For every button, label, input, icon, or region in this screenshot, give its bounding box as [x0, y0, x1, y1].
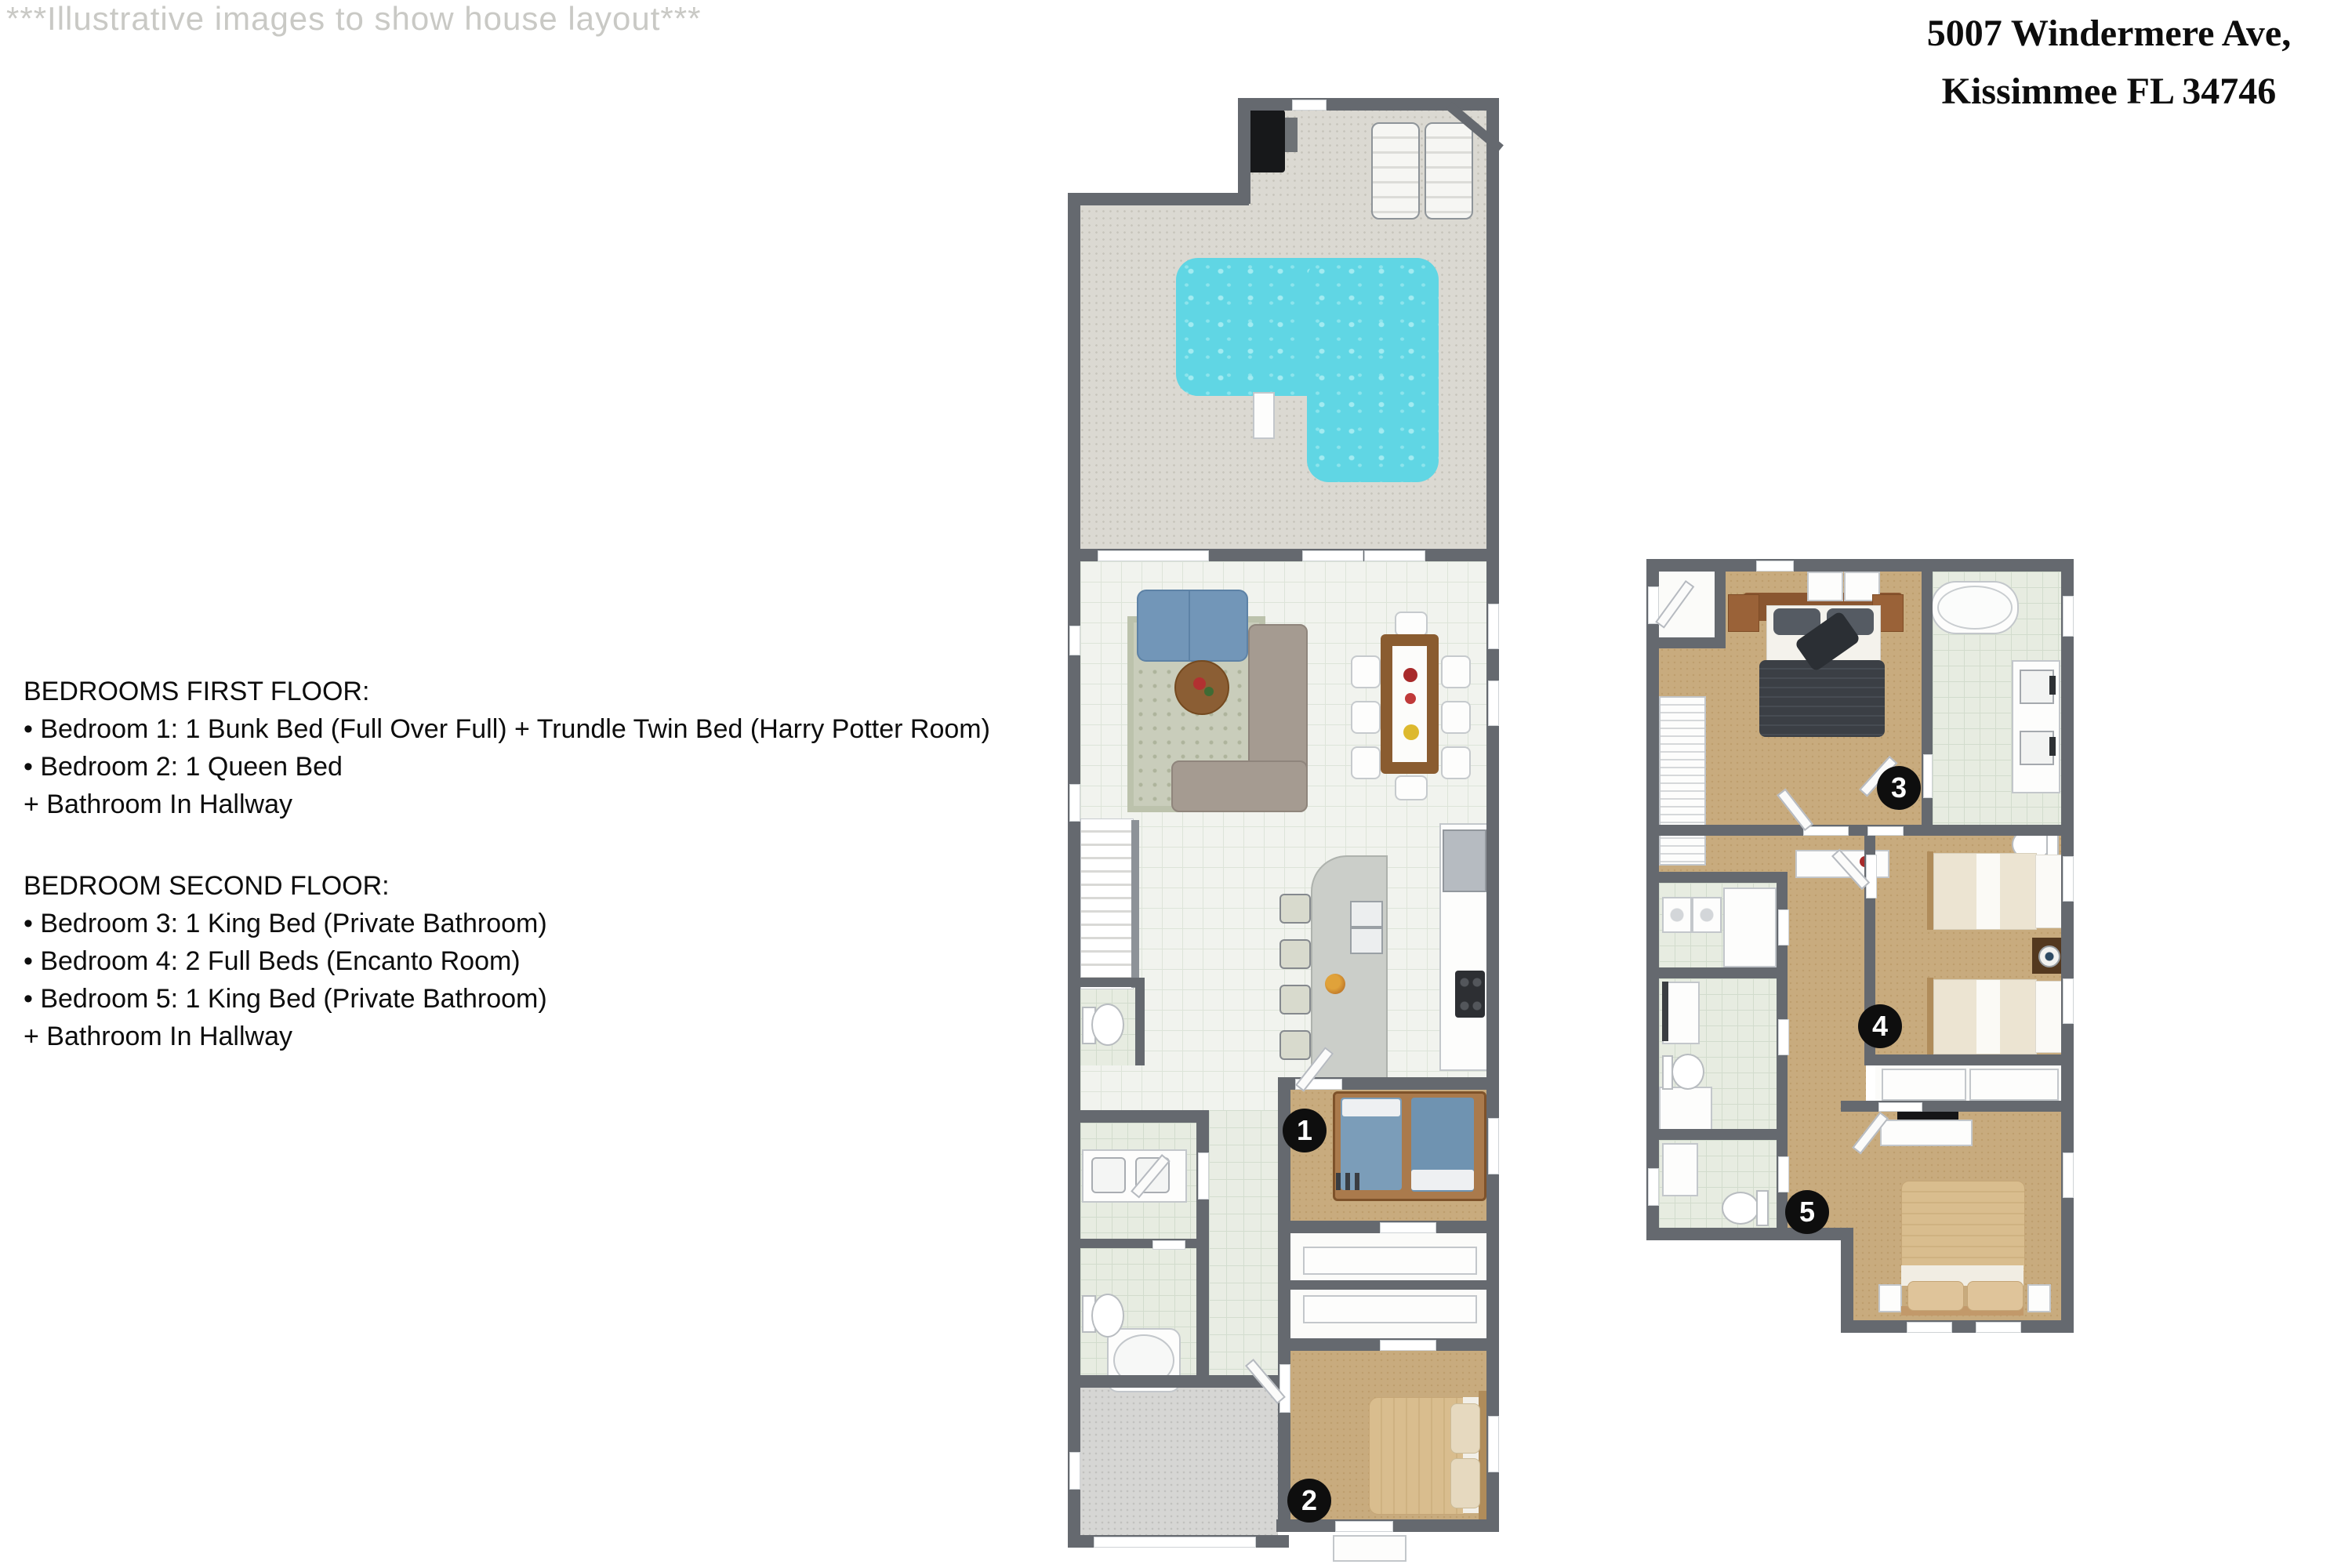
laundry-wall-bottom [1659, 967, 1777, 978]
plan2-window-bed4-1 [2063, 856, 2074, 902]
first-floor-info: BEDROOMS FIRST FLOOR: • Bedroom 1: 1 Bun… [24, 673, 990, 823]
bathroom3-tub-basin [1937, 586, 2013, 630]
grill-side-shelf [1285, 118, 1298, 152]
hallway-floor [1209, 1110, 1278, 1378]
kitchen-island [1311, 855, 1388, 1080]
window-left-2 [1069, 784, 1080, 822]
plan2-window-bottom-1 [1907, 1322, 1952, 1333]
hall-bath-toilet-bowl [1671, 1054, 1704, 1090]
staircase [1080, 818, 1134, 989]
powder-toilet-bowl [1091, 1004, 1124, 1046]
floorplan-page: { "watermark": "***Illustrative images t… [0, 0, 2352, 1568]
bathroom1-sink-1 [1091, 1157, 1126, 1193]
plan2-window-bed4-2 [2063, 978, 2074, 1024]
window-left-1 [1069, 626, 1080, 655]
garage-door-opening [1094, 1537, 1256, 1548]
window-bedroom1 [1488, 1118, 1499, 1174]
hall-bath-door-opening [1778, 1019, 1789, 1055]
patio-window-west [1098, 550, 1209, 561]
full-bed-b-footboard [1927, 978, 1933, 1054]
window-right-2 [1488, 681, 1499, 726]
dining-decor-red [1405, 693, 1416, 704]
window-bedroom2 [1488, 1416, 1499, 1472]
dining-chair-right-3 [1441, 746, 1471, 779]
first-floor-bath-item: + Bathroom In Hallway [24, 786, 990, 823]
dining-chair-right-1 [1441, 655, 1471, 688]
trundle-bed-sheet [1411, 1170, 1474, 1190]
bar-stool-1 [1279, 894, 1311, 924]
island-sink-2 [1350, 927, 1383, 954]
plan2-window-left-2 [1648, 1168, 1659, 1206]
bathroom1-wall-right [1196, 1110, 1209, 1375]
closet2-opening [1380, 1340, 1436, 1351]
bar-stool-2 [1279, 939, 1311, 969]
bathroom5-toilet-tank [1756, 1190, 1769, 1226]
sectional-sofa-horizontal [1171, 760, 1308, 812]
bathroom5-door-opening [1778, 1156, 1789, 1192]
bedroom-2-badge: 2 [1287, 1479, 1331, 1523]
closet1-opening [1380, 1222, 1436, 1233]
bedroom5-wall-top [1841, 1101, 2061, 1112]
front-porch-step [1333, 1535, 1406, 1562]
first-floor-heading: BEDROOMS FIRST FLOOR: [24, 673, 990, 710]
bathroom1-toilet-bowl [1091, 1294, 1124, 1338]
bedroom-3-badge: 3 [1877, 766, 1921, 810]
lounge-chair-2 [1425, 122, 1473, 220]
front-door-opening [1335, 1521, 1393, 1532]
bed5-nightstand-left [1878, 1284, 1902, 1312]
second-floor-heading: BEDROOM SECOND FLOOR: [24, 867, 547, 905]
plan2-window-bed5 [2063, 1152, 2074, 1198]
fruit-bowl [1325, 974, 1345, 994]
full-bed-a-footboard [1927, 851, 1933, 930]
closet2-shelf [1303, 1295, 1477, 1323]
bedroom-5-item: • Bedroom 5: 1 King Bed (Private Bathroo… [24, 980, 547, 1018]
hall2-opening [1867, 826, 1904, 836]
bathrooms-divider-wall [1659, 1129, 1777, 1140]
king-bed5-duvet [1901, 1181, 2025, 1272]
watermark-text: ***Illustrative images to show house lay… [6, 0, 701, 38]
bed3-closet-wall-h [1659, 637, 1726, 648]
bed5-pillow-1 [1907, 1281, 1964, 1311]
bed3-louver-closet-door [1659, 696, 1706, 866]
bedroom-4-item: • Bedroom 4: 2 Full Beds (Encanto Room) [24, 942, 547, 980]
loveseat-blue [1137, 590, 1248, 662]
full-bed-a [1933, 853, 2037, 930]
coffee-table-decor-red [1193, 677, 1206, 690]
closet45-shelf-1 [1882, 1069, 1966, 1101]
dining-decor-bowl [1403, 724, 1419, 740]
garage-floor [1080, 1388, 1278, 1537]
bar-stool-3 [1279, 985, 1311, 1014]
laundry-door-opening [1778, 909, 1789, 946]
plan2-bed5-wall-left [1841, 1228, 1853, 1333]
bedroom-2-item: • Bedroom 2: 1 Queen Bed [24, 748, 990, 786]
second-floor-info: BEDROOM SECOND FLOOR: • Bedroom 3: 1 Kin… [24, 867, 547, 1055]
cooktop [1455, 971, 1485, 1018]
bed3-duvet [1759, 660, 1885, 737]
queen-bed-pillow-2 [1450, 1458, 1480, 1508]
patio-slider-1 [1302, 550, 1363, 561]
bedroom-1-badge: 1 [1283, 1109, 1327, 1152]
plan2-window-bottom-2 [1976, 1322, 2021, 1333]
hall-bath-shower [1659, 1087, 1712, 1131]
plan2-wall-bottom [1841, 1320, 2074, 1333]
bedroom5-door-opening [1878, 1102, 1922, 1112]
dining-chair-left-1 [1351, 655, 1381, 688]
deck-wall-left [1068, 193, 1080, 561]
bathroom3-door-opening [1923, 754, 1933, 798]
dining-chair-right-2 [1441, 701, 1471, 734]
bathroom1-door-opening [1198, 1152, 1209, 1200]
queen-bed-pillow-1 [1450, 1403, 1480, 1454]
bar-stool-4 [1279, 1030, 1311, 1060]
bathroom3-faucet-1 [2049, 676, 2056, 695]
address-line-1: 5007 Windermere Ave, [1874, 5, 2344, 63]
bathroom1-inner-opening [1152, 1240, 1185, 1250]
dining-chair-bottom [1395, 775, 1428, 800]
patio-slider-2 [1364, 550, 1425, 561]
laundry-cabinet [1723, 887, 1777, 967]
dryer [1692, 897, 1722, 933]
washer [1662, 897, 1692, 933]
bathroom5-shower [1662, 1143, 1698, 1196]
stair-railing [1131, 820, 1139, 988]
closet-divider-wall [1290, 1280, 1486, 1290]
lounge-chair-1 [1371, 122, 1420, 220]
bedroom2-door-opening [1279, 1364, 1290, 1413]
dining-decor-flowers [1403, 668, 1417, 682]
full-bed-b-pillow [2035, 981, 2062, 1053]
second-floor-bath-item: + Bathroom In Hallway [24, 1018, 547, 1055]
hall-bath-counter-edge [1662, 982, 1668, 1041]
bedroom-5-badge: 5 [1785, 1190, 1829, 1234]
bedroom-1-item: • Bedroom 1: 1 Bunk Bed (Full Over Full)… [24, 710, 990, 748]
powder-wall-right [1135, 978, 1145, 1065]
coffee-table-decor-green [1204, 687, 1214, 696]
deck-gate-opening [1292, 100, 1327, 111]
pool-lower-leg [1307, 258, 1439, 482]
bed3-nightstand-left [1728, 594, 1759, 632]
window-right-1 [1488, 604, 1499, 649]
deck-wall-jog [1068, 193, 1249, 205]
bed4-fan [2038, 946, 2060, 967]
bathroom3-faucet-2 [2049, 737, 2056, 756]
bedroom-3-item: • Bedroom 3: 1 King Bed (Private Bathroo… [24, 905, 547, 942]
full-bed-b [1933, 979, 2037, 1054]
laundry-wall-top [1659, 872, 1777, 883]
bed3-dresser-1 [1807, 572, 1843, 601]
closet45-shelf-2 [1969, 1069, 2059, 1101]
plan2-window-top [1756, 561, 1794, 572]
bed5-pillow-2 [1967, 1281, 2024, 1311]
closet45-wall-top [1875, 1054, 2061, 1065]
bedroom4-door-opening [1866, 855, 1877, 898]
house-wall-left [1068, 549, 1080, 1548]
bed3-closet-wall-v [1715, 570, 1726, 648]
window-garage [1069, 1452, 1080, 1490]
dining-chair-top [1395, 612, 1428, 637]
pool-step [1253, 392, 1275, 439]
closet1-shelf [1303, 1247, 1477, 1275]
plan2-window-bath3 [2063, 596, 2074, 637]
plan2-wall-right [2061, 559, 2074, 1333]
bedroom-4-badge: 4 [1858, 1004, 1902, 1048]
plan2-wall-top [1646, 559, 2074, 572]
deck-wall-strip-left [1238, 98, 1250, 204]
dining-chair-left-2 [1351, 701, 1381, 734]
dining-table-runner [1392, 646, 1427, 762]
property-address: 5007 Windermere Ave, Kissimmee FL 34746 [1874, 5, 2344, 121]
address-line-2: Kissimmee FL 34746 [1874, 63, 2344, 121]
plan2-wall-mid-h [1659, 825, 2061, 836]
bed5-nightstand-right [2027, 1284, 2051, 1312]
bed5-tv-console [1880, 1120, 1973, 1146]
bathroom5-toilet-bowl [1722, 1192, 1759, 1225]
bedroom3-door-opening [1803, 826, 1849, 836]
deck-wall-right [1486, 98, 1499, 561]
plan2-wall-bottom-left [1646, 1228, 1853, 1240]
bathroom1-wall-top [1068, 1110, 1196, 1123]
plan2-wall-left [1646, 559, 1659, 1240]
bunk-bed-pillow [1342, 1099, 1400, 1116]
dining-chair-left-3 [1351, 746, 1381, 779]
refrigerator [1443, 829, 1486, 892]
island-sink-1 [1350, 901, 1383, 927]
bunk-bed-ladder [1336, 1173, 1364, 1190]
full-bed-a-pillow [2035, 855, 2062, 928]
